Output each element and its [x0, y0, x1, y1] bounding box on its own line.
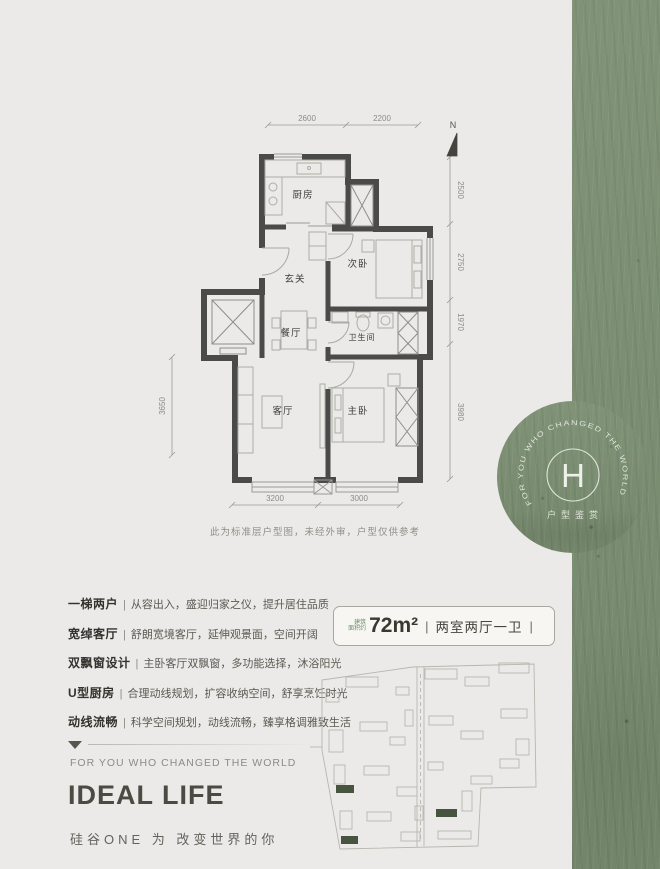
feature-desc: 舒朗宽境客厅，延伸观景面，空间开阔 — [131, 626, 318, 642]
feature-desc: 从容出入，盛迎归家之仪，提升居住品质 — [131, 596, 329, 612]
feature-term: 动线流畅 — [68, 713, 118, 730]
feature-term: U型厨房 — [68, 684, 115, 701]
feature-separator: | — [123, 599, 126, 611]
footer-divider — [68, 741, 318, 750]
dim-right-4: 3980 — [456, 403, 465, 421]
site-plan — [310, 650, 548, 866]
feature-term: 一梯两户 — [68, 595, 118, 612]
room-label-bath: 卫生间 — [349, 332, 376, 342]
dim-top-1: 2600 — [298, 114, 316, 123]
feature-separator: | — [123, 629, 126, 641]
circle-caption: 户型鉴赏 — [547, 509, 603, 520]
floor-plan-svg: 2600 2200 2500 2750 1970 3980 3650 3200 … — [150, 112, 480, 522]
plan-caption: 此为标准层户型图，未经外审，户型仅供参考 — [150, 524, 480, 538]
feature-separator: | — [120, 688, 123, 700]
footer-slogan-en: FOR YOU WHO CHANGED THE WORLD — [70, 757, 296, 769]
triangle-down-icon — [68, 741, 82, 749]
area-prefix: 建筑 面积约 — [348, 620, 366, 633]
room-label-bedroom2: 次卧 — [347, 258, 368, 270]
room-label-master: 主卧 — [347, 405, 368, 417]
floor-plan: 2600 2200 2500 2750 1970 3980 3650 3200 … — [150, 112, 480, 522]
badge-separator: | — [530, 619, 533, 634]
north-arrow-icon: N — [447, 120, 457, 156]
elevator — [212, 300, 254, 354]
footer-title: IDEAL LIFE — [68, 780, 225, 811]
brand-circle: FOR YOU WHO CHANGED THE WORLD H 户型鉴赏 — [497, 401, 649, 553]
feature-separator: | — [123, 717, 126, 729]
north-label: N — [450, 120, 457, 130]
dim-top-2: 2200 — [373, 114, 391, 123]
area-value: 72m² — [369, 614, 418, 638]
feature-term: 双飘窗设计 — [68, 654, 131, 671]
room-label-living: 客厅 — [272, 405, 293, 417]
dim-right-1: 2500 — [456, 181, 465, 199]
area-prefix-line2: 面积约 — [348, 626, 366, 633]
area-badge: 建筑 面积约 72m² | 两室两厅一卫 | — [333, 606, 555, 646]
divider-line — [88, 744, 316, 745]
dim-bottom-1: 3200 — [266, 494, 284, 503]
room-label-dining: 餐厅 — [280, 327, 301, 339]
layout-label: 两室两厅一卫 — [436, 616, 523, 636]
feature-separator: | — [136, 658, 139, 670]
dim-right-2: 2750 — [456, 253, 465, 271]
brand-circle-art: FOR YOU WHO CHANGED THE WORLD H 户型鉴赏 — [497, 401, 649, 553]
site-plan-svg — [310, 650, 548, 866]
dim-left-1: 3650 — [158, 397, 167, 415]
room-label-entry: 玄关 — [284, 273, 305, 285]
badge-separator: | — [425, 619, 428, 634]
footer-slogan-cn: 硅谷ONE 为 改变世界的你 — [70, 829, 278, 848]
feature-item: 一梯两户 | 从容出入，盛迎归家之仪，提升居住品质 — [68, 595, 358, 612]
site-buildings-highlighted — [336, 785, 457, 844]
windows — [252, 154, 433, 494]
dim-right-3: 1970 — [456, 313, 465, 331]
dim-bottom-2: 3000 — [350, 494, 368, 503]
site-buildings — [326, 663, 529, 841]
site-boundary — [310, 664, 536, 849]
feature-item: 宽绰客厅 | 舒朗宽境客厅，延伸观景面，空间开阔 — [68, 625, 358, 642]
room-label-kitchen: 厨房 — [292, 189, 313, 201]
feature-term: 宽绰客厅 — [68, 625, 118, 642]
h-letter: H — [561, 457, 585, 494]
